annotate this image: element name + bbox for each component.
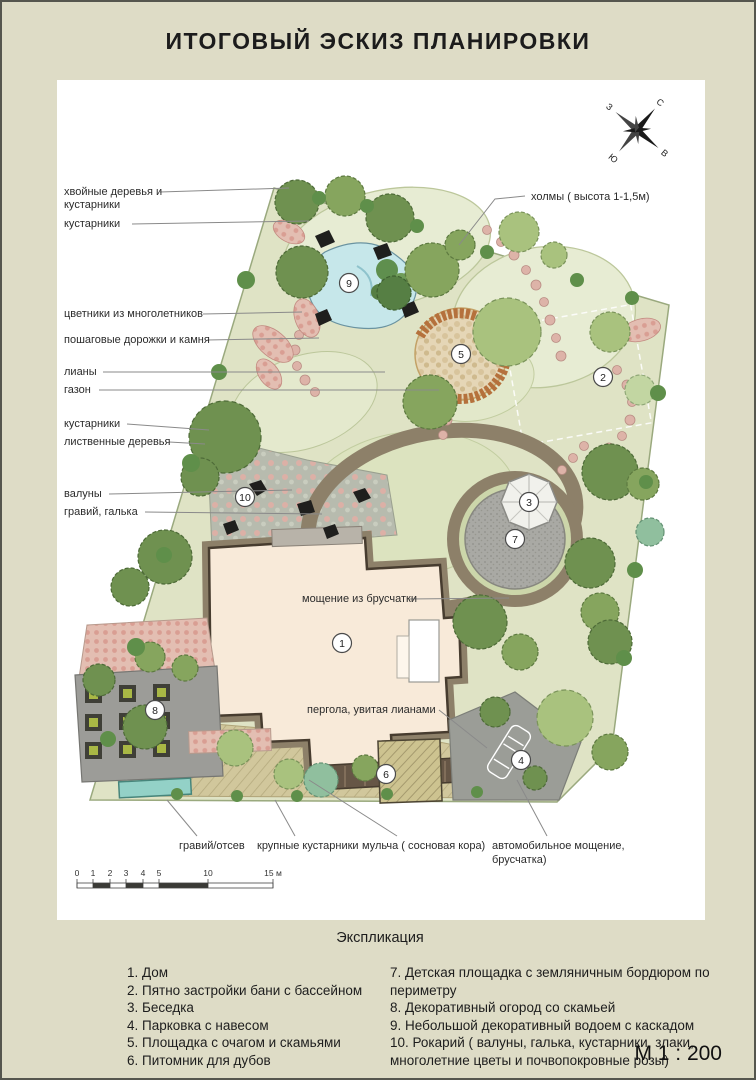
label-lianas: лианы xyxy=(64,366,97,378)
svg-text:2: 2 xyxy=(108,868,113,878)
legend-item-3: 3. Беседка xyxy=(127,999,377,1017)
label-conifers-line2: кустарники xyxy=(64,199,120,211)
legend-item-6: 6. Питомник для дубов xyxy=(127,1052,377,1070)
svg-text:8: 8 xyxy=(152,705,158,717)
svg-text:4: 4 xyxy=(518,755,524,767)
marker-9: 9 xyxy=(340,274,359,293)
label-hills: холмы ( высота 1-1,5м) xyxy=(531,191,650,203)
label-lawn: газон xyxy=(64,384,91,396)
label-mulch: мульча ( сосновая кора) xyxy=(362,840,485,852)
legend-item-9: 9. Небольшой декоративный водоем с каска… xyxy=(390,1017,725,1035)
marker-8: 8 xyxy=(146,701,165,720)
marker-5: 5 xyxy=(452,345,471,364)
label-conifers-line1: хвойные деревья и xyxy=(64,186,162,198)
map-scale-note: М 1 : 200 xyxy=(634,1042,722,1066)
marker-2: 2 xyxy=(594,368,613,387)
scale-bar: 0 1 2 3 4 5 10 15 м xyxy=(75,868,282,888)
compass-east-label: В xyxy=(659,147,670,159)
label-shrubs-top: кустарники xyxy=(64,218,120,230)
label-shrubs-mid: кустарники xyxy=(64,418,120,430)
legend-item-2: 2. Пятно застройки бани с бассейном xyxy=(127,982,377,1000)
legend-item-7: 7. Детская площадка с земляничным бордюр… xyxy=(390,964,725,999)
label-boulders: валуны xyxy=(64,488,102,500)
svg-text:4: 4 xyxy=(141,868,146,878)
svg-text:1: 1 xyxy=(339,638,345,650)
plan-sheet: хвойные деревья и кустарники кустарники … xyxy=(57,80,705,920)
svg-text:10: 10 xyxy=(239,492,251,504)
svg-text:3: 3 xyxy=(124,868,129,878)
label-pergola: пергола, увитая лианами xyxy=(307,704,436,716)
svg-text:9: 9 xyxy=(346,278,352,290)
marker-10: 10 xyxy=(236,488,255,507)
svg-text:10: 10 xyxy=(203,868,213,878)
page-title: ИТОГОВЫЙ ЭСКИЗ ПЛАНИРОВКИ xyxy=(2,28,754,55)
legend-item-5: 5. Площадка с очагом и скамьями xyxy=(127,1034,377,1052)
explication-left-column: 1. Дом 2. Пятно застройки бани с бассейн… xyxy=(127,964,377,1069)
label-car-paving-line1: автомобильное мощение, xyxy=(492,840,625,852)
marker-6: 6 xyxy=(377,765,396,784)
compass-west-label: З xyxy=(604,101,615,112)
compass-north-label: С xyxy=(654,97,666,109)
legend-item-8: 8. Декоративный огород со скамьей xyxy=(390,999,725,1017)
compass-rose-icon: С Ю В З xyxy=(580,80,693,187)
label-gravel-pebbles: гравий, галька xyxy=(64,506,139,518)
svg-text:2: 2 xyxy=(600,372,606,384)
label-gravel-siftings: гравий/отсев xyxy=(179,840,245,852)
label-stepping-paths: пошаговые дорожки и камня xyxy=(64,334,210,346)
label-paving: мощение из брусчатки xyxy=(302,593,417,605)
label-perennials: цветники из многолетников xyxy=(64,308,203,320)
svg-text:5: 5 xyxy=(458,349,464,361)
site-plan-drawing: хвойные деревья и кустарники кустарники … xyxy=(57,80,705,920)
compass-south-label: Ю xyxy=(607,152,620,166)
legend-item-1: 1. Дом xyxy=(127,964,377,982)
marker-3: 3 xyxy=(520,493,539,512)
svg-text:0: 0 xyxy=(75,868,80,878)
legend-item-4: 4. Парковка с навесом xyxy=(127,1017,377,1035)
svg-text:5: 5 xyxy=(157,868,162,878)
svg-text:15 м: 15 м xyxy=(264,868,282,878)
svg-text:1: 1 xyxy=(91,868,96,878)
marker-1: 1 xyxy=(333,634,352,653)
label-large-shrubs: крупные кустарники xyxy=(257,840,359,852)
svg-text:6: 6 xyxy=(383,769,389,781)
svg-text:3: 3 xyxy=(526,497,532,509)
marker-4: 4 xyxy=(512,751,531,770)
page: ИТОГОВЫЙ ЭСКИЗ ПЛАНИРОВКИ xyxy=(0,0,756,1080)
explication-heading: Экспликация xyxy=(2,930,756,946)
marker-7: 7 xyxy=(506,530,525,549)
label-deciduous: лиственные деревья xyxy=(64,436,171,448)
svg-text:7: 7 xyxy=(512,534,518,546)
label-car-paving-line2: брусчатка) xyxy=(492,854,547,866)
